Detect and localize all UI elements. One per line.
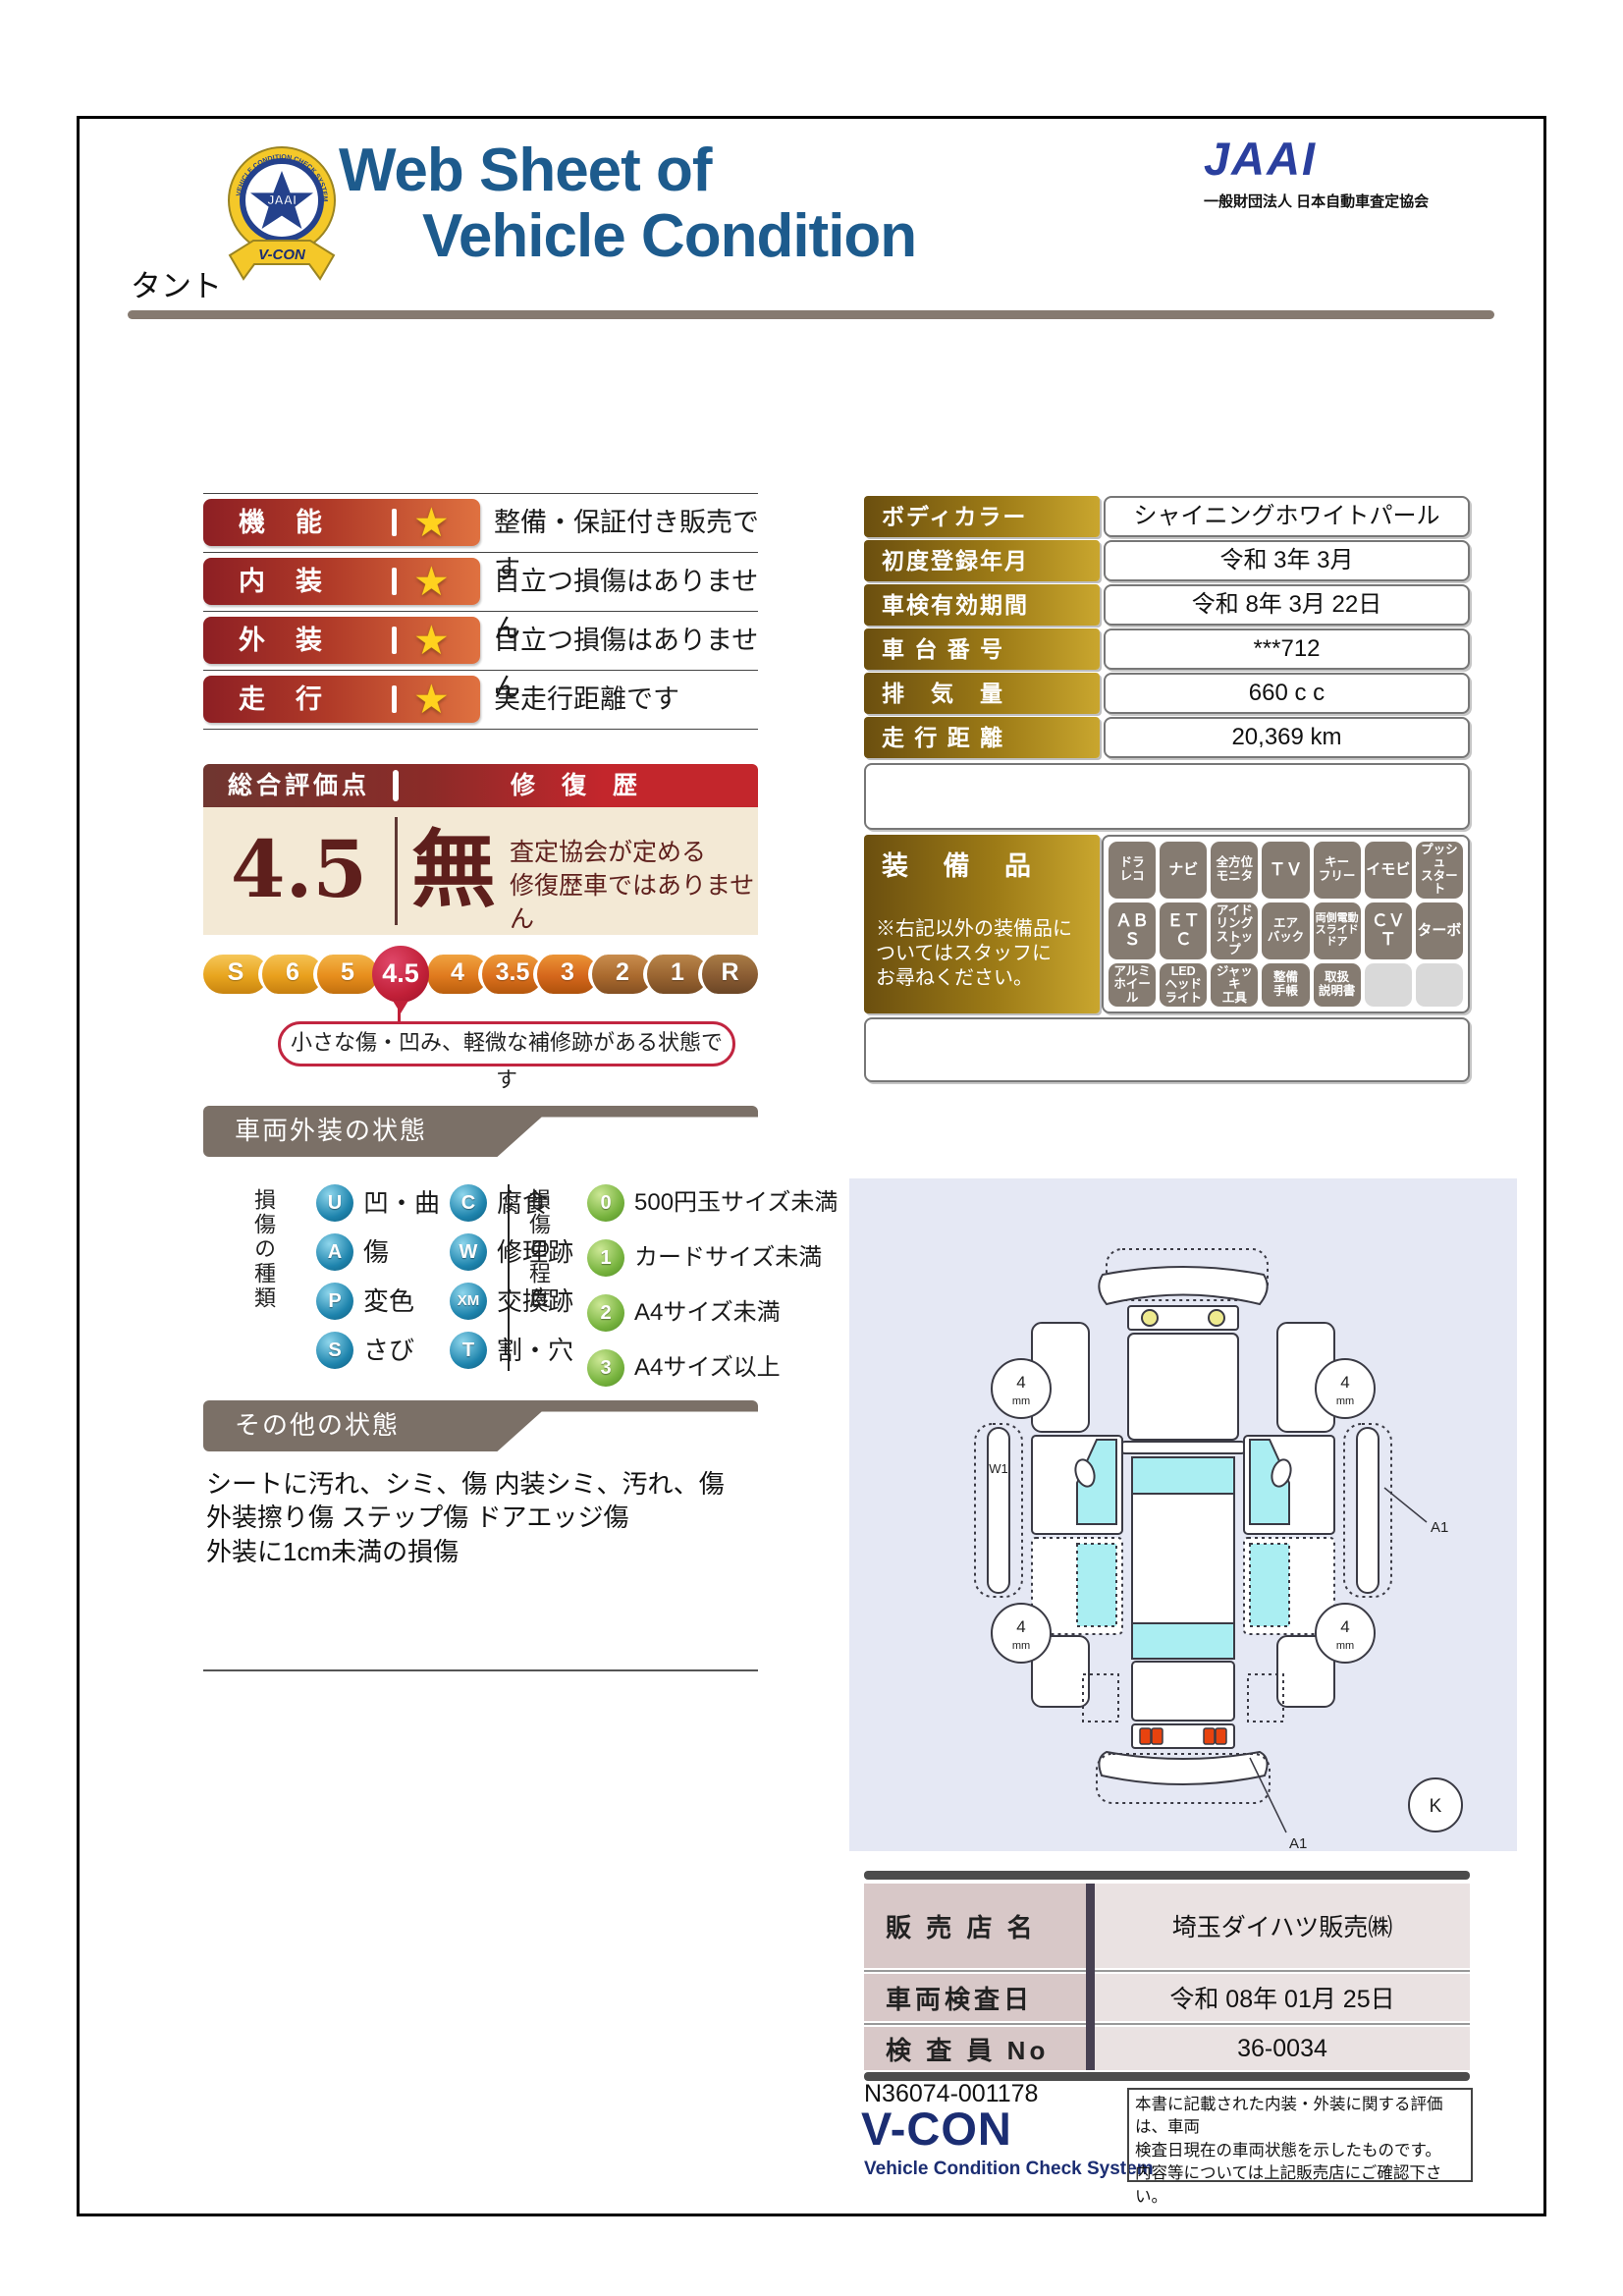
divider (864, 2023, 1470, 2025)
tire-front-right: 4 mm (1316, 1359, 1375, 1418)
equipment-badge: ドラ レコ (1109, 842, 1156, 899)
rear-bumper-mark: A1 (1289, 1835, 1307, 1851)
overall-score-title: 総合評価点 (203, 764, 395, 807)
taillight-left-icon (1152, 1728, 1163, 1744)
repair-history-value: 無 (411, 821, 496, 919)
vcon-badge-logo: VEHICLE CONDITION CHECK SYSTEM JAAI V-CO… (218, 139, 346, 306)
rating-bar-exterior: 外 装 ★ (203, 617, 480, 664)
equipment-label-cell: 装 備 品 ※右記以外の装備品に ついてはスタッフに お尋ねください。 (864, 835, 1100, 1013)
rating-label: 走 行 (239, 676, 324, 723)
damage-type-item: XM交換跡 (450, 1283, 573, 1320)
rating-desc: 実走行距離です (494, 676, 769, 723)
damage-degree-item: 1カードサイズ未満 (587, 1239, 822, 1277)
vcon-logo: V-CON (861, 2102, 1012, 2156)
rating-label: 内 装 (239, 558, 324, 605)
degree-1-icon: 1 (587, 1239, 624, 1277)
equipment-badge: プッシュ スタート (1416, 842, 1463, 899)
svg-text:mm: mm (1012, 1395, 1030, 1407)
spec-value-inspection-valid: 令和 8年 3月 22日 (1104, 584, 1470, 626)
inspector-no-value: 36-0034 (1095, 2027, 1470, 2070)
taillight-right-icon (1204, 1728, 1215, 1744)
separator (392, 685, 397, 713)
tailgate (1132, 1662, 1234, 1721)
dealer-label: 販 売 店 名 (864, 1884, 1086, 1968)
annotation-line (1384, 1488, 1427, 1522)
spec-label: 車 台 番 号 (864, 629, 1100, 670)
grade-r: R (698, 955, 758, 994)
type-u-icon: U (316, 1184, 353, 1222)
separator (392, 509, 397, 536)
right-panel-mark: A1 (1431, 1519, 1448, 1536)
equipment-badge: 取扱 説明書 (1314, 963, 1361, 1007)
type-s-icon: S (316, 1332, 353, 1369)
type-a-icon: A (316, 1233, 353, 1271)
annotation-line (1250, 1758, 1286, 1832)
taillight-right-icon (1216, 1728, 1226, 1744)
type-c-icon: C (450, 1184, 487, 1222)
equipment-badge: アイド リング ストップ (1211, 902, 1258, 959)
divider (203, 729, 758, 730)
svg-text:4: 4 (1016, 1373, 1025, 1392)
equipment-badge-empty (1416, 963, 1463, 1007)
damage-type-title: 損傷の種類 (247, 1188, 279, 1311)
right-rocker (1357, 1428, 1379, 1593)
equipment-badge: 両側電動 スライド ドア (1314, 902, 1361, 959)
separator (393, 770, 399, 801)
spec-value-displacement: 660 c c (1104, 673, 1470, 714)
spec-value-mileage: 20,369 km (1104, 717, 1470, 758)
equipment-badge: LED ヘッド ライト (1160, 963, 1207, 1007)
divider (864, 1871, 1470, 1880)
vcon-subtitle: Vehicle Condition Check System (864, 2159, 1154, 2180)
divider (864, 1970, 1470, 1972)
key-symbol: K (1409, 1778, 1462, 1831)
damage-degree-item: 0500円玉サイズ未満 (587, 1184, 838, 1222)
equipment-badge: ジャッキ 工具 (1211, 963, 1258, 1007)
tire-rear-right: 4 mm (1316, 1604, 1375, 1663)
separator (392, 627, 397, 654)
left-rear-window (1077, 1544, 1116, 1626)
damage-type-item: Sさび (316, 1332, 414, 1369)
page-title-line2: Vehicle Condition (422, 201, 916, 271)
roof (1132, 1494, 1234, 1623)
equipment-badge: ナビ (1160, 842, 1207, 899)
star-icon: ★ (413, 677, 450, 722)
vehicle-condition-sheet: VEHICLE CONDITION CHECK SYSTEM JAAI V-CO… (0, 0, 1623, 2296)
jaai-organization-name: 一般財団法人 日本自動車査定協会 (1204, 191, 1429, 211)
type-xm-icon: XM (450, 1283, 487, 1320)
equipment-note: ※右記以外の装備品に ついてはスタッフに お尋ねください。 (876, 917, 1072, 991)
tire-rear-left: 4 mm (992, 1604, 1051, 1663)
equipment-badge: ＥＴＣ (1160, 902, 1207, 959)
repair-history-desc: 査定協会が定める 修復歴車ではありません (510, 837, 758, 936)
left-rocker (988, 1428, 1009, 1593)
overall-score-header: 総合評価点 修 復 歴 (203, 764, 758, 807)
equipment-badge: キー フリー (1314, 842, 1361, 899)
type-t-icon: T (450, 1332, 487, 1369)
svg-text:V-CON: V-CON (258, 246, 306, 263)
degree-0-icon: 0 (587, 1184, 624, 1222)
type-p-icon: P (316, 1283, 353, 1320)
disclaimer-box: 本書に記載された内装・外装に関する評価は、車両 検査日現在の車両状態を示したもの… (1127, 2088, 1473, 2182)
separator (392, 568, 397, 595)
front-bumper (1099, 1267, 1267, 1304)
other-condition-text: シートに汚れ、シミ、傷 内装シミ、汚れ、傷 外装擦り傷 ステップ傷 ドアエッジ傷… (206, 1467, 766, 1568)
spec-label: ボディカラー (864, 496, 1100, 537)
headlight-left-icon (1142, 1310, 1158, 1326)
spec-value-first-registration: 令和 3年 3月 (1104, 540, 1470, 581)
section-title: 車両外装の状態 (235, 1106, 427, 1155)
right-rear-window (1250, 1544, 1289, 1626)
svg-text:JAAI: JAAI (267, 192, 297, 207)
dealer-name-value: 埼玉ダイハツ販売㈱ (1095, 1884, 1470, 1968)
damage-type-item: U凹・曲 (316, 1184, 440, 1222)
divider (203, 493, 758, 494)
grade-scale: S 6 5 4 3.5 3 2 1 R 4.5 (203, 946, 758, 1005)
svg-text:4: 4 (1340, 1373, 1349, 1392)
left-rocker-mark: W1 (989, 1461, 1008, 1476)
svg-text:mm: mm (1012, 1640, 1030, 1652)
damage-type-item: A傷 (316, 1233, 389, 1271)
vehicle-name: タント (131, 261, 222, 305)
empty-note-box (864, 763, 1470, 830)
rear-roof-glass (1132, 1623, 1234, 1659)
headlight-right-icon (1209, 1310, 1224, 1326)
equipment-badge: ＴＶ (1262, 842, 1309, 899)
spec-label: 排 気 量 (864, 673, 1100, 714)
overall-score-value: 4.5 (203, 807, 395, 931)
section-title: その他の状態 (235, 1400, 400, 1449)
degree-2-icon: 2 (587, 1294, 624, 1332)
equipment-badges: ドラ レコ ナビ 全方位 モニタ ＴＶ キー フリー イモビ プッシュ スタート… (1102, 835, 1470, 1013)
spec-label: 走 行 距 離 (864, 717, 1100, 758)
vehicle-damage-diagram: W1 4 mm 4 mm (849, 1178, 1517, 1851)
rear-bumper (1099, 1752, 1267, 1784)
type-w-icon: W (450, 1233, 487, 1271)
inspection-date-value: 令和 08年 01月 25日 (1095, 1974, 1470, 2021)
page-title-line1: Web Sheet of (339, 136, 712, 205)
equipment-badge: 整備 手帳 (1262, 963, 1309, 1007)
degree-3-icon: 3 (587, 1349, 624, 1387)
svg-text:mm: mm (1336, 1395, 1354, 1407)
spec-value-chassis-no: ***712 (1104, 629, 1470, 670)
separator (1086, 1884, 1095, 2070)
inspection-date-label: 車両検査日 (864, 1974, 1086, 2021)
hood-windshield (1128, 1334, 1238, 1440)
equipment-badge-empty (1365, 963, 1412, 1007)
spec-label: 車検有効期間 (864, 584, 1100, 626)
spec-label: 初度登録年月 (864, 540, 1100, 581)
star-icon: ★ (413, 559, 450, 604)
equipment-badge: イモビ (1365, 842, 1412, 899)
divider (203, 1669, 758, 1671)
front-roof-glass (1132, 1457, 1234, 1494)
rating-bar-interior: 内 装 ★ (203, 558, 480, 605)
star-icon: ★ (413, 618, 450, 663)
damage-degree-title: 損傷の程度 (522, 1188, 554, 1311)
spec-value-body-color: シャイニングホワイトパール (1104, 496, 1470, 537)
inspector-no-label: 検 査 員 No (864, 2027, 1086, 2070)
jaai-logo: JAAI (1204, 132, 1317, 186)
equipment-badge: ターボ (1416, 902, 1463, 959)
damage-degree-item: 2A4サイズ未満 (587, 1294, 781, 1332)
separator (395, 817, 398, 925)
grade-5: 5 (313, 955, 378, 994)
selected-grade-marker: 4.5 (372, 946, 429, 1003)
rating-label: 機 能 (239, 499, 324, 546)
overall-score-body: 4.5 無 査定協会が定める 修復歴車ではありません (203, 807, 758, 935)
svg-text:mm: mm (1336, 1640, 1354, 1652)
svg-text:K: K (1430, 1796, 1442, 1817)
cowl (1120, 1442, 1246, 1453)
damage-type-item: P変色 (316, 1283, 414, 1320)
star-icon: ★ (413, 500, 450, 545)
tire-front-left: 4 mm (992, 1359, 1051, 1418)
divider (508, 1184, 510, 1371)
svg-text:4: 4 (1016, 1617, 1025, 1636)
grade-explanation-bubble: 小さな傷・凹み、軽微な補修跡がある状態です (278, 1021, 735, 1066)
svg-text:4: 4 (1340, 1617, 1349, 1636)
equipment-badge: ＡＢＳ (1109, 902, 1156, 959)
empty-note-box (864, 1017, 1470, 1082)
taillight-left-icon (1140, 1728, 1151, 1744)
damage-type-item: T割・穴 (450, 1332, 573, 1369)
equipment-title: 装 備 品 (882, 845, 1045, 883)
pointer-icon (393, 1001, 408, 1013)
rating-bar-function: 機 能 ★ (203, 499, 480, 546)
divider (128, 310, 1494, 319)
rating-label: 外 装 (239, 617, 324, 664)
equipment-badge: ＣＶＴ (1365, 902, 1412, 959)
equipment-badge: アルミ ホイール (1109, 963, 1156, 1007)
equipment-badge: 全方位 モニタ (1211, 842, 1258, 899)
repair-history-title: 修 復 歴 (400, 764, 758, 807)
rating-bar-mileage: 走 行 ★ (203, 676, 480, 723)
damage-degree-item: 3A4サイズ以上 (587, 1349, 781, 1387)
damage-type-item: W修理跡 (450, 1233, 573, 1271)
equipment-badge: エア バック (1262, 902, 1309, 959)
